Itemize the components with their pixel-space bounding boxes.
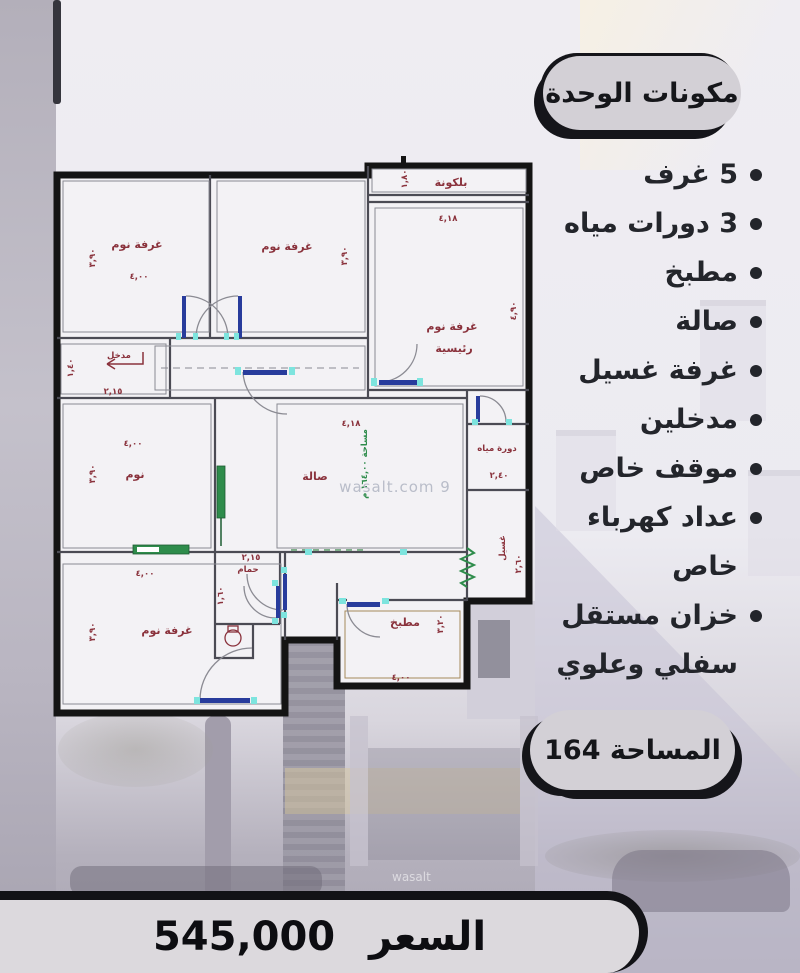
area-badge-label: المساحة 164 [544, 735, 721, 766]
tree-foliage [58, 712, 213, 787]
dim-label: ٤,١٨ [439, 214, 459, 224]
bullet-icon [750, 218, 762, 230]
parked-car [612, 850, 790, 912]
watermark: wasalt.com 9 [339, 478, 451, 496]
dim-label: ٢,١٥ [104, 387, 123, 397]
list-item-label: خزان مستقل سفلي وعلوي [556, 600, 738, 680]
list-item: عداد كهرباء خاص [540, 493, 762, 591]
list-item: 5 غرف [540, 150, 762, 199]
unit-components-title: مكونات الوحدة [545, 78, 738, 109]
room-label-bedroom: غرفة نوم [261, 240, 312, 253]
price-value: 545,000 [153, 914, 335, 960]
building-left-edge [0, 0, 56, 905]
dim-label: ٢,٦٠ [514, 555, 524, 574]
dim-label: ٤,٠٠ [392, 673, 411, 683]
list-item: مطبخ [540, 248, 762, 297]
list-item-label: موقف خاص [579, 453, 738, 484]
bullet-icon [750, 267, 762, 279]
list-item-label: عداد كهرباء خاص [587, 502, 738, 582]
dim-label: ٢,٤٠ [490, 471, 509, 481]
photo-watermark: wasalt [392, 870, 431, 884]
unit-components-badge: مكونات الوحدة [543, 56, 741, 130]
room-label-laundry: غسيل [498, 535, 508, 561]
dim-label: ٢,١٥ [242, 553, 261, 563]
room-label-balcony: بلكونة [435, 176, 468, 189]
list-item-label: 5 غرف [643, 159, 738, 190]
building-dark-edge [53, 0, 61, 104]
room-label-kitchen: مطبخ [390, 616, 420, 629]
room-label-bedroom: نوم [125, 468, 144, 481]
dim-label: ٣,٩٠ [340, 247, 350, 266]
list-item: موقف خاص [540, 444, 762, 493]
room-label-bedroom: غرفة نوم [141, 624, 192, 637]
price-bar: السعر 545,000 [0, 891, 648, 973]
room-label-master2: رئيسية [435, 342, 472, 355]
room-label-hall: صالة [302, 470, 328, 483]
list-item: خزان مستقل سفلي وعلوي [540, 591, 762, 689]
bullet-icon [750, 169, 762, 181]
bullet-icon [750, 316, 762, 328]
room-label-wc: دورة مياه [477, 444, 517, 454]
bullet-icon [750, 365, 762, 377]
price-label: السعر [369, 914, 486, 960]
floor-plan: غرفة نوم ٣,٩٠ ٤,٠٠ غرفة نوم ٣,٩٠ بلكونة … [55, 146, 537, 720]
dim-label: ١,٨٠ [400, 170, 410, 189]
list-item: صالة [540, 297, 762, 346]
bullet-icon [750, 610, 762, 622]
dim-label: ٤,٠٠ [136, 569, 155, 579]
list-item: 3 دورات مياه [540, 199, 762, 248]
dim-label: ١,٦٠ [216, 587, 226, 606]
list-item: مدخلين [540, 395, 762, 444]
entrance-glass [368, 748, 520, 860]
list-item-label: صالة [675, 306, 738, 337]
bullet-icon [750, 512, 762, 524]
room-label-entry: مدخل [107, 351, 131, 361]
list-item: غرفة غسيل [540, 346, 762, 395]
dim-label: ٣,٢٠ [436, 615, 446, 634]
dim-label: ٤,٠٠ [130, 272, 149, 282]
entrance-pillar [350, 716, 368, 866]
dim-label: ٤,٩٠ [509, 302, 519, 321]
dim-label: ٤,٠٠ [124, 439, 143, 449]
room-label-master: غرفة نوم [426, 320, 477, 333]
room-label-bathroom: حمام [237, 565, 258, 575]
dim-label: ٣,٩٠ [88, 249, 98, 268]
list-item-label: مطبخ [665, 257, 739, 288]
dim-label: ٣,٩٠ [88, 465, 98, 484]
area-badge: المساحة 164 [530, 710, 735, 790]
feature-list: 5 غرف 3 دورات مياه مطبخ صالة غرفة غسيل م… [540, 150, 762, 689]
dim-label: ٤,١٨ [342, 419, 362, 429]
list-item-label: مدخلين [640, 404, 738, 435]
bullet-icon [750, 463, 762, 475]
list-item-label: 3 دورات مياه [564, 208, 738, 239]
list-item-label: غرفة غسيل [578, 355, 738, 386]
bullet-icon [750, 414, 762, 426]
dim-label: ٣,٩٠ [88, 623, 98, 642]
dim-label: ١,٤٠ [66, 359, 76, 378]
room-label-bedroom: غرفة نوم [111, 238, 162, 251]
